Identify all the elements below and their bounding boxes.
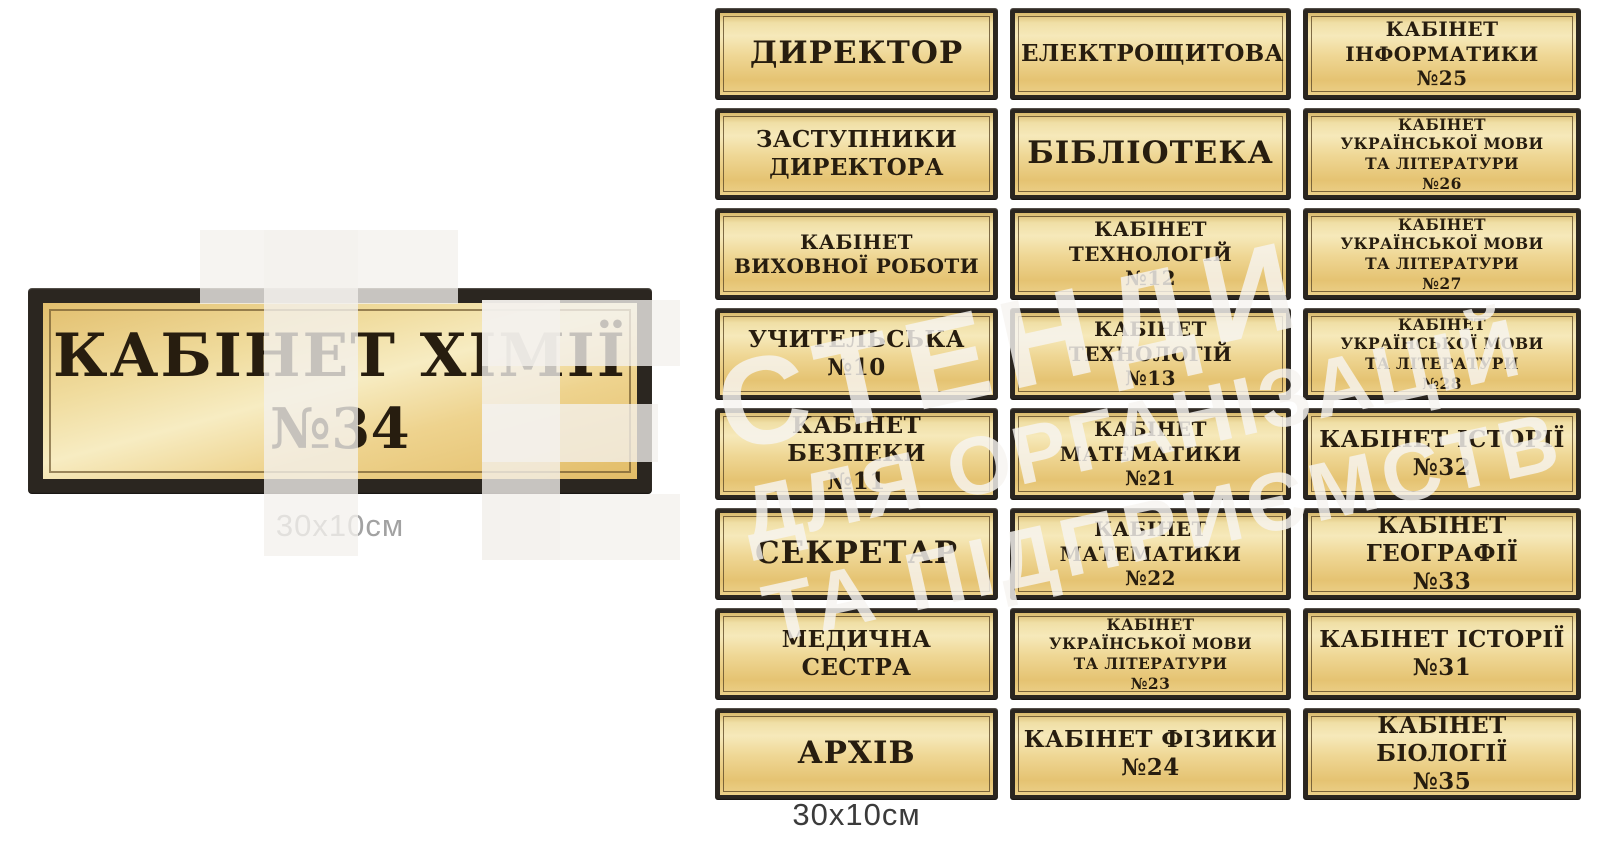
sign-label: КАБІНЕТ МАТЕМАТИКИ№22: [1015, 517, 1286, 590]
door-sign: МЕДИЧНА СЕСТРА: [715, 608, 998, 700]
featured-door-sign: КАБІНЕТ ХІМІЇ №34: [28, 288, 652, 494]
door-sign: УЧИТЕЛЬСЬКА№10: [715, 308, 998, 400]
sign-plate: КАБІНЕТУКРАЇНСЬКОЇ МОВИТА ЛІТЕРАТУРИ№28: [1308, 313, 1576, 395]
door-sign: ЗАСТУПНИКИДИРЕКТОРА: [715, 108, 998, 200]
sign-plate: КАБІНЕТ ТЕХНОЛОГІЙ№13: [1015, 313, 1286, 395]
sign-label: КАБІНЕТ МАТЕМАТИКИ№21: [1015, 417, 1286, 490]
featured-sign-title: КАБІНЕТ ХІМІЇ: [49, 319, 631, 394]
door-sign: КАБІНЕТУКРАЇНСЬКОЇ МОВИТА ЛІТЕРАТУРИ№23: [1010, 608, 1291, 700]
door-sign: ДИРЕКТОР: [715, 8, 998, 100]
sign-grid: ДИРЕКТОРЕЛЕКТРОЩИТОВАКАБІНЕТІНФОРМАТИКИ№…: [715, 8, 1581, 800]
grid-size-label: 30x10см: [715, 797, 998, 833]
sign-plate: КАБІНЕТ БІОЛОГІЇ№35: [1308, 713, 1576, 795]
door-sign: КАБІНЕТ ФІЗИКИ№24: [1010, 708, 1291, 800]
sign-plate: ЕЛЕКТРОЩИТОВА: [1015, 13, 1286, 95]
sign-plate: КАБІНЕТ ІСТОРІЇ№31: [1308, 613, 1576, 695]
door-sign: КАБІНЕТ ТЕХНОЛОГІЙ№13: [1010, 308, 1291, 400]
featured-sign-label: КАБІНЕТ ХІМІЇ №34: [43, 319, 637, 464]
door-sign: КАБІНЕТ ІСТОРІЇ№31: [1303, 608, 1581, 700]
sign-label: КАБІНЕТУКРАЇНСЬКОЇ МОВИТА ЛІТЕРАТУРИ№28: [1308, 315, 1576, 393]
featured-sign-plate: КАБІНЕТ ХІМІЇ №34: [43, 303, 637, 479]
sign-plate: КАБІНЕТ МАТЕМАТИКИ№21: [1015, 413, 1286, 495]
sign-label: КАБІНЕТ БІОЛОГІЇ№35: [1308, 713, 1576, 795]
sign-plate: КАБІНЕТУКРАЇНСЬКОЇ МОВИТА ЛІТЕРАТУРИ№23: [1015, 613, 1286, 695]
door-sign: АРХІВ: [715, 708, 998, 800]
sign-label: КАБІНЕТ ГЕОГРАФІЇ№33: [1308, 513, 1576, 595]
door-sign: КАБІНЕТУКРАЇНСЬКОЇ МОВИТА ЛІТЕРАТУРИ№26: [1303, 108, 1581, 200]
door-sign: КАБІНЕТ ІСТОРІЇ№32: [1303, 408, 1581, 500]
sign-plate: ДИРЕКТОР: [720, 13, 993, 95]
sign-label: КАБІНЕТ ІСТОРІЇ№31: [1308, 626, 1576, 682]
sign-plate: СЕКРЕТАР: [720, 513, 993, 595]
sign-plate: КАБІНЕТ ІСТОРІЇ№32: [1308, 413, 1576, 495]
door-sign: КАБІНЕТ МАТЕМАТИКИ№21: [1010, 408, 1291, 500]
sign-label: КАБІНЕТУКРАЇНСЬКОЇ МОВИТА ЛІТЕРАТУРИ№26: [1308, 115, 1576, 193]
door-sign: КАБІНЕТІНФОРМАТИКИ№25: [1303, 8, 1581, 100]
door-sign: БІБЛІОТЕКА: [1010, 108, 1291, 200]
sign-label: СЕКРЕТАР: [720, 535, 993, 573]
sign-label: КАБІНЕТУКРАЇНСЬКОЇ МОВИТА ЛІТЕРАТУРИ№27: [1308, 215, 1576, 293]
sign-label: КАБІНЕТ ІСТОРІЇ№32: [1308, 426, 1576, 482]
sign-plate: КАБІНЕТІНФОРМАТИКИ№25: [1308, 13, 1576, 95]
sign-plate: КАБІНЕТ ФІЗИКИ№24: [1015, 713, 1286, 795]
sign-label: КАБІНЕТ ТЕХНОЛОГІЙ№13: [1015, 317, 1286, 390]
sign-label: МЕДИЧНА СЕСТРА: [720, 626, 993, 682]
sign-label: КАБІНЕТ ТЕХНОЛОГІЙ№12: [1015, 217, 1286, 290]
sign-plate: КАБІНЕТ ТЕХНОЛОГІЙ№12: [1015, 213, 1286, 295]
product-sheet: КАБІНЕТ ХІМІЇ №34 30x10см ДИРЕКТОРЕЛЕКТР…: [0, 0, 1600, 854]
sign-plate: КАБІНЕТ БЕЗПЕКИ№11: [720, 413, 993, 495]
door-sign: КАБІНЕТ ТЕХНОЛОГІЙ№12: [1010, 208, 1291, 300]
sign-label: ДИРЕКТОР: [720, 35, 993, 73]
sign-plate: КАБІНЕТУКРАЇНСЬКОЇ МОВИТА ЛІТЕРАТУРИ№27: [1308, 213, 1576, 295]
sign-plate: БІБЛІОТЕКА: [1015, 113, 1286, 195]
door-sign: ЕЛЕКТРОЩИТОВА: [1010, 8, 1291, 100]
sign-label: КАБІНЕТ БЕЗПЕКИ№11: [720, 413, 993, 495]
door-sign: КАБІНЕТУКРАЇНСЬКОЇ МОВИТА ЛІТЕРАТУРИ№27: [1303, 208, 1581, 300]
door-sign: КАБІНЕТ БЕЗПЕКИ№11: [715, 408, 998, 500]
sign-label: КАБІНЕТІНФОРМАТИКИ№25: [1308, 17, 1576, 90]
sign-plate: КАБІНЕТУКРАЇНСЬКОЇ МОВИТА ЛІТЕРАТУРИ№26: [1308, 113, 1576, 195]
sign-plate: МЕДИЧНА СЕСТРА: [720, 613, 993, 695]
sign-plate: КАБІНЕТ ГЕОГРАФІЇ№33: [1308, 513, 1576, 595]
sign-label: БІБЛІОТЕКА: [1015, 135, 1286, 173]
door-sign: КАБІНЕТ ГЕОГРАФІЇ№33: [1303, 508, 1581, 600]
featured-sign-number: №34: [49, 394, 631, 464]
sign-plate: КАБІНЕТВИХОВНОЇ РОБОТИ: [720, 213, 993, 295]
sign-plate: КАБІНЕТ МАТЕМАТИКИ№22: [1015, 513, 1286, 595]
door-sign: КАБІНЕТВИХОВНОЇ РОБОТИ: [715, 208, 998, 300]
sign-label: АРХІВ: [720, 735, 993, 773]
sign-label: КАБІНЕТУКРАЇНСЬКОЇ МОВИТА ЛІТЕРАТУРИ№23: [1015, 615, 1286, 693]
sign-label: КАБІНЕТ ФІЗИКИ№24: [1015, 726, 1286, 782]
sign-label: КАБІНЕТВИХОВНОЇ РОБОТИ: [720, 230, 993, 279]
door-sign: КАБІНЕТ МАТЕМАТИКИ№22: [1010, 508, 1291, 600]
door-sign: КАБІНЕТУКРАЇНСЬКОЇ МОВИТА ЛІТЕРАТУРИ№28: [1303, 308, 1581, 400]
sign-label: ЕЛЕКТРОЩИТОВА: [1015, 40, 1286, 68]
sign-label: ЗАСТУПНИКИДИРЕКТОРА: [720, 126, 993, 182]
sign-plate: ЗАСТУПНИКИДИРЕКТОРА: [720, 113, 993, 195]
featured-size-label: 30x10см: [28, 508, 652, 544]
door-sign: КАБІНЕТ БІОЛОГІЇ№35: [1303, 708, 1581, 800]
sign-plate: УЧИТЕЛЬСЬКА№10: [720, 313, 993, 395]
sign-plate: АРХІВ: [720, 713, 993, 795]
sign-label: УЧИТЕЛЬСЬКА№10: [720, 326, 993, 382]
door-sign: СЕКРЕТАР: [715, 508, 998, 600]
